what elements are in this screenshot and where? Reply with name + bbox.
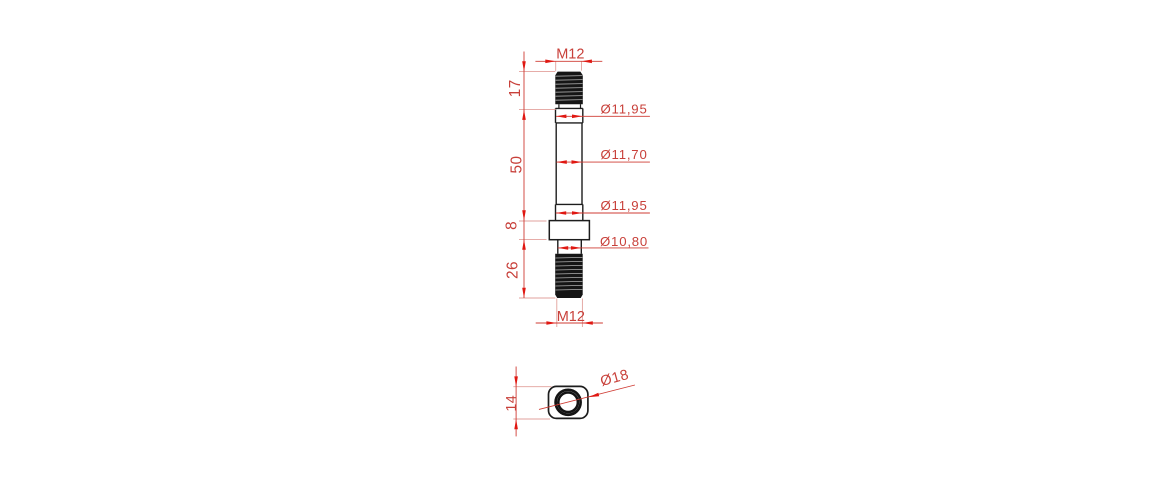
svg-text:26: 26 xyxy=(504,261,521,279)
svg-text:Ø11,95: Ø11,95 xyxy=(601,198,648,213)
svg-text:8: 8 xyxy=(503,221,520,230)
svg-text:14: 14 xyxy=(504,395,520,412)
svg-text:17: 17 xyxy=(507,79,524,97)
svg-text:M12: M12 xyxy=(557,309,585,325)
svg-text:Ø11,70: Ø11,70 xyxy=(601,147,648,162)
svg-text:50: 50 xyxy=(508,155,525,173)
svg-text:Ø10,80: Ø10,80 xyxy=(600,234,648,249)
svg-text:M12: M12 xyxy=(556,47,584,63)
svg-text:Ø11,95: Ø11,95 xyxy=(601,102,648,117)
